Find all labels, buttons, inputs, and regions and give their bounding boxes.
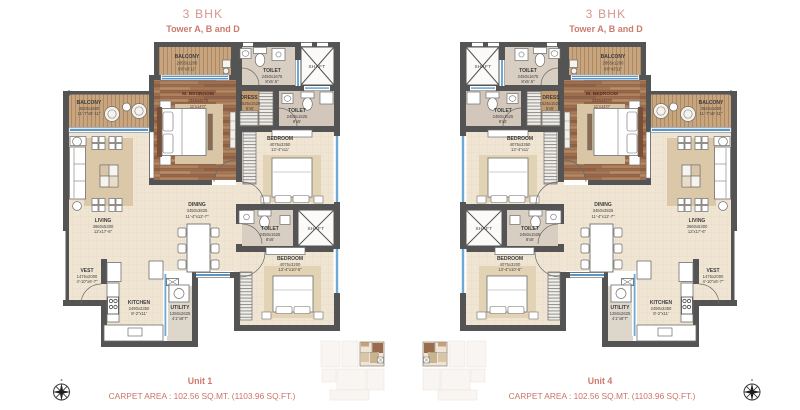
svg-text:M. BEDROOM: M. BEDROOM (182, 91, 214, 97)
svg-text:11'x14'0": 11'x14'0" (594, 104, 611, 109)
svg-text:3 BHK: 3 BHK (183, 7, 224, 21)
svg-text:3 BHK: 3 BHK (586, 7, 627, 21)
svg-text:3345x4275: 3345x4275 (592, 98, 613, 103)
svg-text:9'8"x3'11": 9'8"x3'11" (604, 67, 623, 72)
svg-text:BALCONY: BALCONY (601, 54, 626, 60)
svg-text:Tower A, B and D: Tower A, B and D (569, 24, 643, 34)
svg-text:13'-4"x10'-6": 13'-4"x10'-6" (278, 267, 302, 272)
svg-text:4'1"x8'7": 4'1"x8'7" (172, 316, 188, 321)
svg-text:11'-4"x12'-7": 11'-4"x12'-7" (185, 214, 209, 219)
svg-text:5'x5': 5'x5' (546, 106, 555, 111)
svg-text:12'x17'-6": 12'x17'-6" (688, 229, 707, 234)
svg-text:11'-7"x5'-11": 11'-7"x5'-11" (78, 111, 101, 116)
svg-text:SHAFT: SHAFT (308, 64, 325, 69)
svg-text:SHAFT: SHAFT (475, 226, 492, 231)
svg-text:8'x5': 8'x5' (499, 119, 508, 124)
svg-text:SHAFT: SHAFT (307, 226, 324, 231)
svg-text:SHAFT: SHAFT (474, 64, 491, 69)
svg-text:11'x14'0": 11'x14'0" (190, 104, 207, 109)
svg-text:11'-4"x12'-7": 11'-4"x12'-7" (591, 214, 615, 219)
svg-text:13'-4"x10'-6": 13'-4"x10'-6" (498, 267, 522, 272)
svg-text:8'-2"x11': 8'-2"x11' (131, 311, 147, 316)
svg-text:4'-10"x6'-7": 4'-10"x6'-7" (702, 279, 724, 284)
svg-text:12'x17'-6": 12'x17'-6" (94, 229, 113, 234)
svg-text:3450x3825: 3450x3825 (593, 208, 614, 213)
svg-text:8'x5'.5": 8'x5'.5" (265, 79, 279, 84)
svg-text:4'-10"x6'-7": 4'-10"x6'-7" (76, 279, 98, 284)
svg-text:2855x1200: 2855x1200 (603, 61, 624, 66)
svg-text:3345x4275: 3345x4275 (188, 98, 209, 103)
svg-text:8'x5'.5": 8'x5'.5" (521, 79, 535, 84)
svg-text:9'8"x3'11": 9'8"x3'11" (178, 67, 197, 72)
svg-text:CARPET AREA : 102.56 SQ.MT. (1: CARPET AREA : 102.56 SQ.MT. (1103.96 SQ.… (509, 391, 696, 401)
svg-text:13'-4"x11': 13'-4"x11' (271, 147, 289, 152)
svg-text:8'x5': 8'x5' (293, 119, 302, 124)
svg-text:Unit 1: Unit 1 (188, 376, 213, 386)
svg-text:13'-4"x11': 13'-4"x11' (511, 147, 529, 152)
svg-text:4'1"x8'7": 4'1"x8'7" (612, 316, 628, 321)
svg-text:5'x5': 5'x5' (246, 106, 255, 111)
svg-text:11'-7"x5'-11": 11'-7"x5'-11" (700, 111, 723, 116)
svg-text:8'x5': 8'x5' (526, 237, 535, 242)
svg-text:2855x1200: 2855x1200 (177, 61, 198, 66)
svg-text:Tower A, B and D: Tower A, B and D (166, 24, 240, 34)
svg-text:Unit 4: Unit 4 (588, 376, 613, 386)
svg-text:3450x3825: 3450x3825 (187, 208, 208, 213)
svg-text:CARPET AREA : 102.56 SQ.MT. (1: CARPET AREA : 102.56 SQ.MT. (1103.96 SQ.… (109, 391, 296, 401)
svg-text:BALCONY: BALCONY (175, 54, 200, 60)
svg-text:M. BEDROOM: M. BEDROOM (586, 91, 618, 97)
svg-text:8'-2"x11': 8'-2"x11' (653, 311, 669, 316)
svg-text:8'x5': 8'x5' (266, 237, 275, 242)
